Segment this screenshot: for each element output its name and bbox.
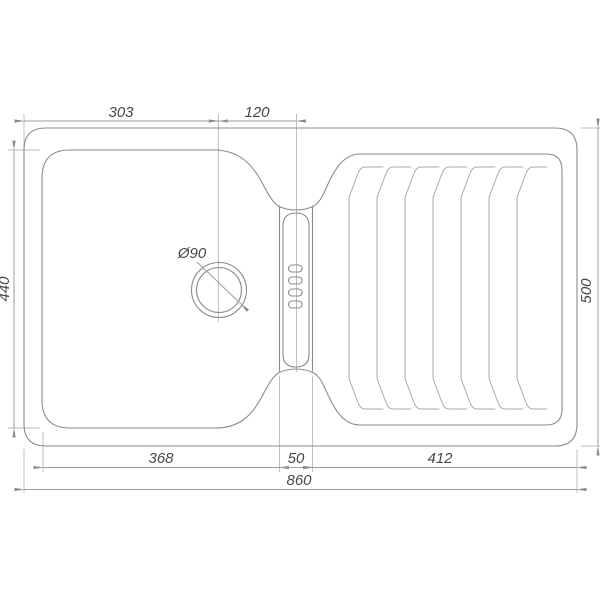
dimension-label-412: 412	[427, 450, 453, 467]
dimension-label-500: 500	[578, 278, 595, 304]
dimension-label-440: 440	[0, 276, 13, 302]
sink-body	[24, 128, 577, 446]
drainboard-ridge	[405, 167, 439, 409]
overflow-slots	[289, 265, 303, 308]
dimension-label-368: 368	[148, 450, 174, 467]
overflow-slot	[289, 301, 303, 308]
sink-outer-outline	[24, 128, 577, 446]
drainboard-ridge	[377, 167, 411, 409]
dimension-lines	[14, 121, 598, 490]
drain-circle-inner	[197, 268, 242, 313]
sink-inner-outline	[42, 150, 562, 428]
dimension-label-120: 120	[244, 104, 270, 121]
dimension-label-860: 860	[286, 472, 312, 489]
overflow-slot	[289, 289, 303, 296]
overflow-slot	[289, 265, 303, 272]
drain-diameter-label: Ø90	[177, 245, 207, 262]
overflow-channel	[283, 213, 309, 367]
dimension-label-303: 303	[108, 104, 134, 121]
overflow-slot	[289, 277, 303, 284]
dimension-label-50: 50	[288, 450, 305, 467]
drainboard-ridge	[461, 167, 495, 409]
drainboard-ridges	[349, 167, 547, 409]
drainboard-ridge	[433, 167, 467, 409]
extension-lines	[8, 114, 600, 493]
drawing-canvas: 303 120 368 50 412 860 440 500 Ø90	[0, 0, 600, 600]
drain-circle-outer	[192, 263, 247, 318]
drainboard-ridge	[349, 167, 383, 409]
drainboard-ridge	[489, 167, 523, 409]
drain-leader-line	[197, 262, 241, 304]
sink-technical-drawing: 303 120 368 50 412 860 440 500 Ø90	[0, 0, 600, 600]
drainboard-ridge	[517, 167, 547, 409]
